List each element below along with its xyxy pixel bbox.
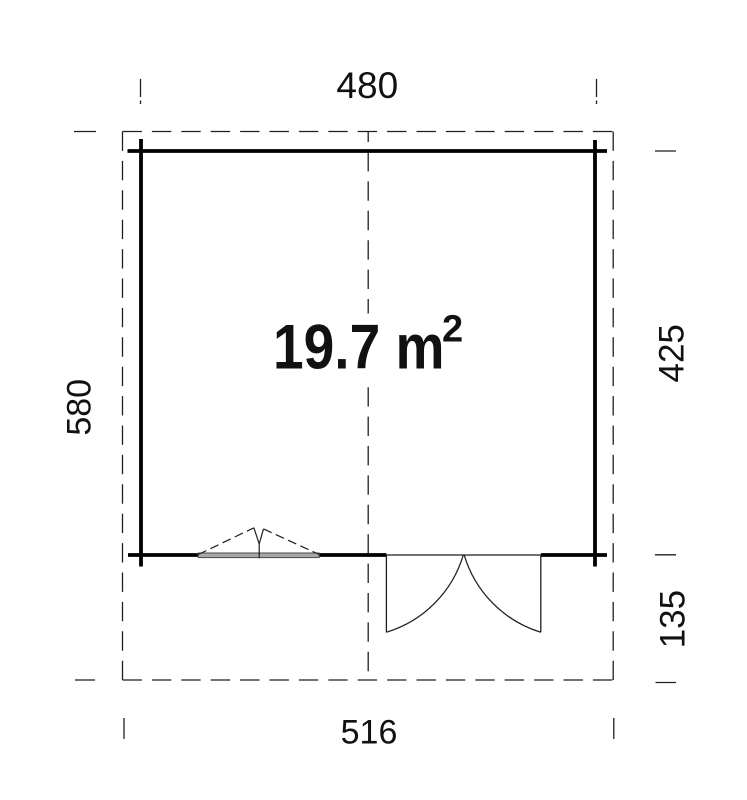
svg-text:425: 425: [653, 324, 692, 382]
svg-text:135: 135: [653, 590, 692, 648]
svg-text:19.7 m: 19.7 m: [273, 313, 445, 383]
svg-text:580: 580: [61, 379, 99, 436]
svg-text:2: 2: [442, 309, 463, 351]
svg-text:480: 480: [336, 65, 398, 106]
svg-text:516: 516: [341, 714, 398, 752]
